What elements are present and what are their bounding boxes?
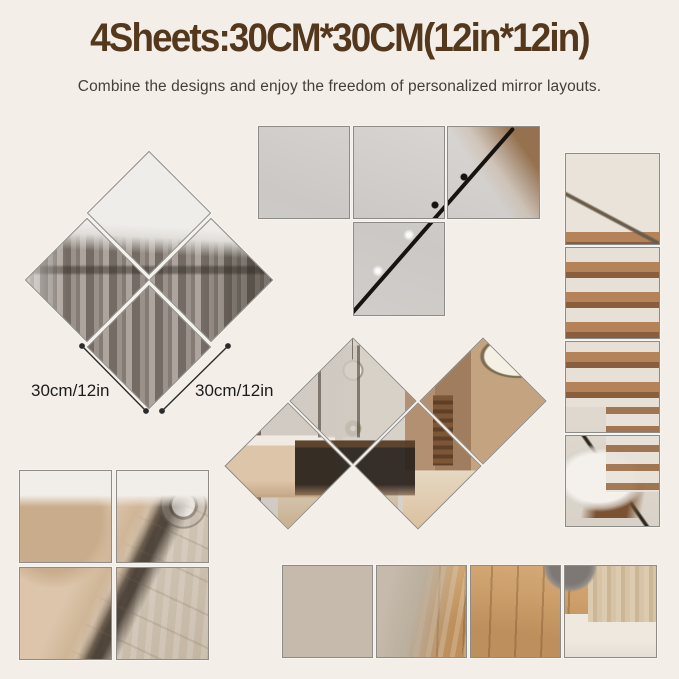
reflection-photo	[564, 566, 657, 658]
mirror-tile	[19, 470, 112, 563]
cluster-t-shape	[258, 126, 540, 316]
mirror-tile	[565, 153, 660, 245]
mirror-tile	[258, 126, 350, 219]
mirror-tile	[564, 565, 657, 658]
mirror-tile	[19, 567, 112, 660]
reflection-photo	[20, 471, 112, 563]
reflection-photo	[283, 566, 373, 658]
cluster-square-2x2	[19, 470, 209, 660]
cluster-diamond-zigzag	[223, 336, 548, 531]
mirror-tile	[116, 470, 209, 563]
dimension-arrow-right	[160, 344, 230, 413]
reflection-photo	[470, 566, 561, 658]
reflection-photo	[566, 247, 660, 339]
dimension-arrow-left	[80, 344, 148, 413]
page-title: 4Sheets:30CM*30CM(12in*12in)	[27, 16, 652, 60]
page-subtitle: Combine the designs and enjoy the freedo…	[0, 77, 679, 96]
mirror-tile	[353, 126, 445, 219]
mirror-tile	[116, 567, 209, 660]
cluster-horizontal-row	[282, 565, 657, 658]
reflection-photo	[566, 435, 660, 527]
dimension-arrows	[70, 338, 240, 420]
reflection-photo	[20, 567, 112, 660]
mirror-tile	[353, 222, 445, 316]
mirror-tile	[470, 565, 561, 658]
reflection-photo	[116, 471, 209, 563]
mirror-tile	[565, 435, 660, 527]
reflection-photo	[566, 341, 660, 433]
reflection-photo	[353, 222, 445, 316]
mirror-tile	[282, 565, 373, 658]
cluster-vertical-column	[565, 153, 660, 527]
reflection-photo	[376, 566, 467, 658]
reflection-photo	[259, 127, 350, 219]
mirror-tile	[565, 341, 660, 433]
dimension-label-left: 30cm/12in	[31, 381, 109, 401]
reflection-photo	[566, 154, 660, 245]
reflection-photo	[353, 127, 445, 219]
mirror-tile	[447, 126, 540, 219]
reflection-photo	[447, 127, 540, 219]
mirror-tile	[376, 565, 467, 658]
product-marketing-image: 4Sheets:30CM*30CM(12in*12in) Combine the…	[0, 0, 679, 679]
reflection-photo	[116, 567, 209, 660]
mirror-tile	[565, 247, 660, 339]
